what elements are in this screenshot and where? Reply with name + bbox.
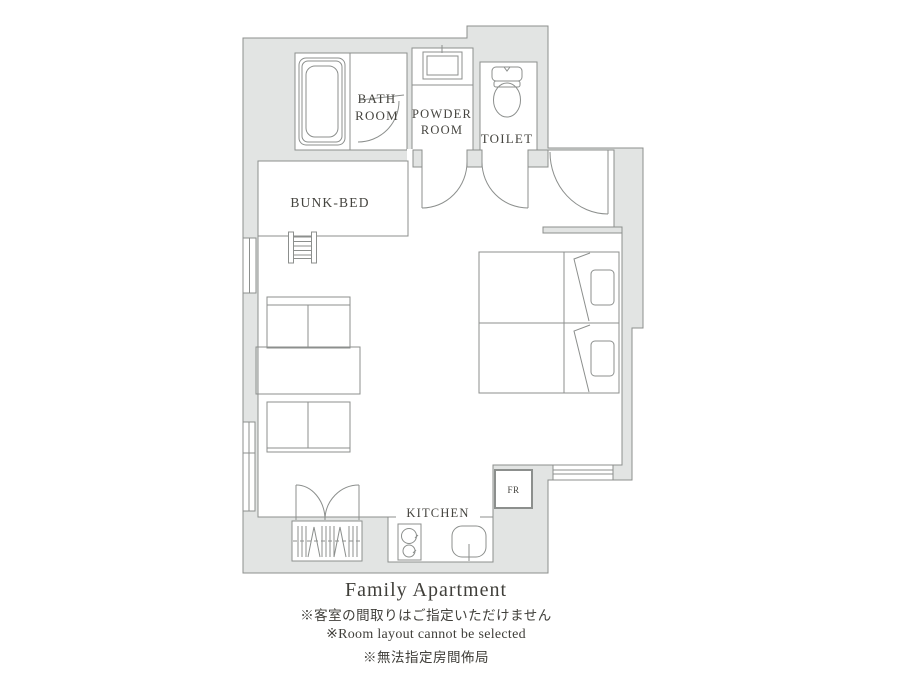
floorplan-drawing <box>0 0 900 675</box>
floorplan-page: BATH ROOM POWDER ROOM TOILET BUNK-BED KI… <box>0 0 900 675</box>
window-left-upper <box>243 238 256 293</box>
bunk-bed-label: BUNK-BED <box>271 194 389 211</box>
jamb-left <box>413 150 422 167</box>
fridge-label: FR <box>495 482 532 499</box>
window-bottom-right <box>553 465 613 480</box>
powder-room-label: POWDER ROOM <box>404 106 480 138</box>
toilet-door-opening <box>482 149 528 162</box>
kitchen-label: KITCHEN <box>396 505 480 522</box>
pillow <box>591 270 614 305</box>
note-chinese: ※無法指定房間佈局 <box>26 646 826 666</box>
jamb-middle <box>467 150 482 167</box>
pillow <box>591 341 614 376</box>
window-left-lower <box>243 422 255 511</box>
page-title: Family Apartment <box>26 579 826 602</box>
jamb-right <box>528 150 548 167</box>
toilet-label: TOILET <box>471 130 543 147</box>
note-english: ※Room layout cannot be selected <box>26 626 826 643</box>
note-japanese: ※客室の間取りはご指定いただけません <box>26 604 826 624</box>
powder-door-opening <box>422 149 467 162</box>
bedroom-wall-stub <box>543 227 622 233</box>
